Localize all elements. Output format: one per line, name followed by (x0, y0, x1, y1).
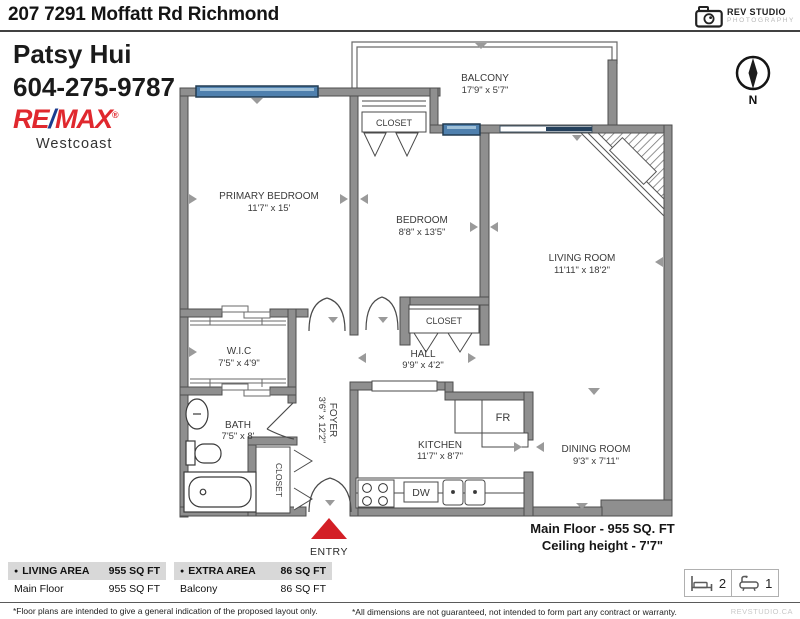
legend-extra-area: ●EXTRA AREA 86 SQ FT Balcony 86 SQ FT (174, 562, 332, 598)
room-dims-living-room: 11'11" x 18'2" (554, 265, 610, 276)
legend-living-area: ●LIVING AREA 955 SQ FT Main Floor 955 SQ… (8, 562, 166, 598)
room-dims-hall: 9'9" x 4'2" (402, 360, 444, 371)
footer-rule (0, 602, 800, 603)
closet-primary-label: CLOSET (376, 118, 413, 128)
toilet-tank (186, 441, 195, 465)
room-dims-dining-room: 9'3" x 7'11" (573, 456, 619, 467)
legend-living-row: Main Floor 955 SQ FT (8, 580, 166, 598)
dishwasher-label: DW (412, 487, 430, 499)
closet-hall-built-in (409, 305, 479, 352)
legend-living-row-label: Main Floor (14, 583, 64, 595)
window-living-room-glass (546, 127, 592, 131)
door-primary-bedroom (309, 298, 345, 331)
bed-icon (690, 575, 714, 592)
footnote-right: *All dimensions are not guaranteed, not … (352, 607, 677, 617)
legend-extra-header-value: 86 SQ FT (280, 565, 326, 577)
closet-primary-built-in (362, 101, 426, 156)
baths-count: 1 (765, 576, 772, 591)
door-bath (267, 403, 294, 439)
door-entry (309, 478, 351, 512)
floor-summary-area: Main Floor - 955 SQ. FT (480, 521, 725, 538)
fridge-label: FR (496, 412, 511, 424)
beds-stat: 2 (684, 569, 732, 597)
window-bedroom (443, 124, 480, 135)
legend-extra-header-label: ●EXTRA AREA (180, 565, 256, 577)
kitchen-counter-square (455, 400, 482, 433)
fireplace (581, 133, 664, 216)
entry-marker: ENTRY (310, 518, 348, 558)
room-dims-bedroom: 8'8" x 13'5" (399, 227, 446, 238)
kitchen-pass-through (372, 381, 437, 391)
bathtub (189, 477, 251, 507)
room-dims-primary-bedroom: 11'7" x 15' (248, 203, 291, 214)
compass-north-label: N (749, 93, 758, 107)
bullet-icon: ● (180, 568, 184, 575)
footnote-left: *Floor plans are intended to give a gene… (13, 606, 318, 616)
entry-arrow (311, 518, 347, 539)
legend-extra-row-value: 86 SQ FT (280, 583, 326, 595)
room-dims-balcony: 17'9" x 5'7" (462, 85, 509, 96)
compass: N (737, 57, 769, 107)
legend-extra-header: ●EXTRA AREA 86 SQ FT (174, 562, 332, 580)
room-dims-bath: 7'5" x 8' (222, 431, 255, 442)
studio-watermark: REVSTUDIO.CA (731, 607, 793, 616)
room-dims-kitchen: 11'7" x 8'7" (417, 451, 463, 462)
floor-summary: Main Floor - 955 SQ. FT Ceiling height -… (480, 521, 725, 555)
door-bedroom (366, 297, 398, 330)
room-label-dining-room: DINING ROOM (562, 444, 631, 455)
room-label-balcony: BALCONY (461, 73, 509, 84)
counter-below-fridge (482, 433, 528, 447)
window-primary-highlight (200, 88, 314, 91)
legend-living-header-value: 955 SQ FT (109, 565, 160, 577)
legend-living-header: ●LIVING AREA 955 SQ FT (8, 562, 166, 580)
room-label-living-room: LIVING ROOM (549, 253, 616, 264)
legend-extra-row-label: Balcony (180, 583, 217, 595)
legend-living-row-value: 955 SQ FT (109, 583, 160, 595)
room-label-wic: W.I.C (227, 346, 251, 357)
bath-fixtures (184, 399, 256, 512)
window-bedroom-highlight (447, 126, 476, 129)
room-dims-foyer: 3'6" x 12'2" (316, 397, 327, 444)
beds-count: 2 (719, 576, 726, 591)
floorplan-flyer: 207 7291 Moffatt Rd Richmond Patsy Hui 6… (0, 0, 800, 619)
baths-stat: 1 (732, 569, 779, 597)
bath-icon (738, 574, 760, 592)
floor-summary-ceiling: Ceiling height - 7'7" (480, 538, 725, 555)
closet-entry-label: CLOSET (274, 463, 284, 497)
room-label-kitchen: KITCHEN (418, 440, 462, 451)
room-label-bath: BATH (225, 420, 251, 431)
stat-boxes: 2 1 (684, 569, 779, 597)
room-dims-wic: 7'5" x 4'9" (218, 358, 260, 369)
legend-extra-row: Balcony 86 SQ FT (174, 580, 332, 598)
legend-living-header-label: ●LIVING AREA (14, 565, 90, 577)
room-label-bedroom: BEDROOM (396, 215, 448, 226)
room-label-primary-bedroom: PRIMARY BEDROOM (219, 191, 319, 202)
toilet-bowl (195, 444, 221, 463)
room-label-foyer: FOYER (327, 403, 338, 437)
window-primary-bedroom (196, 86, 318, 97)
room-label-hall: HALL (410, 349, 435, 360)
closet-hall-label: CLOSET (426, 316, 463, 326)
bullet-icon: ● (14, 568, 18, 575)
entry-label: ENTRY (310, 546, 348, 558)
